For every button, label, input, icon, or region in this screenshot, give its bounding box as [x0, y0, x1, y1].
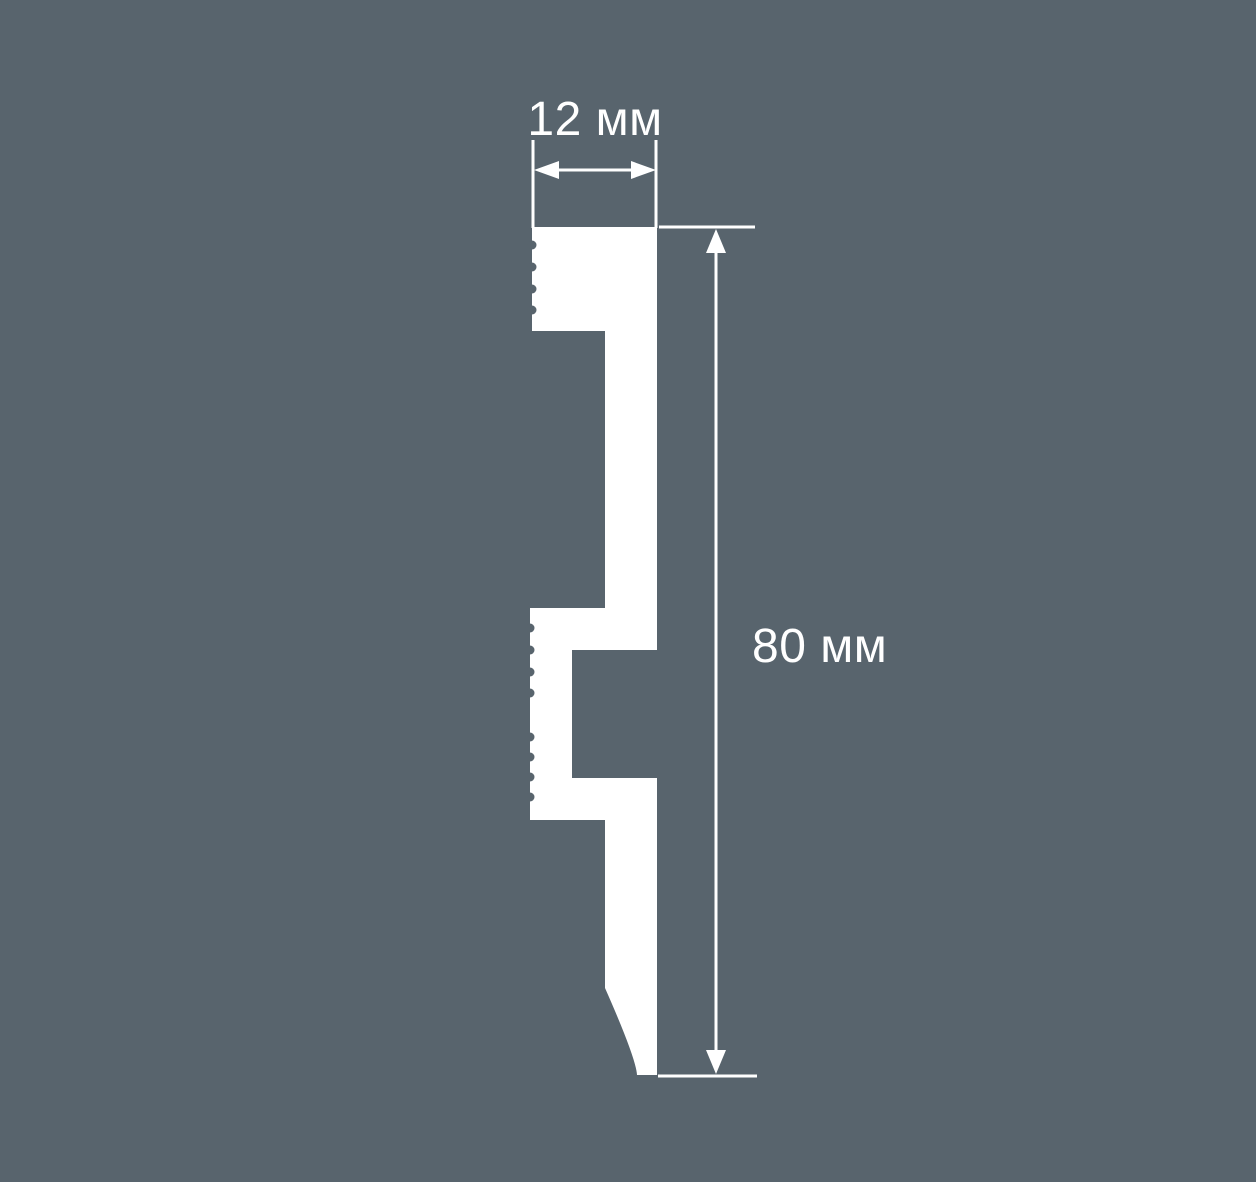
width-extension-line-right [655, 140, 658, 228]
width-arrow-shaft [554, 169, 636, 172]
height-extension-line-bottom [658, 1075, 757, 1078]
diagram-canvas: 12 мм 80 мм [0, 0, 1256, 1182]
width-dimension-label: 12 мм [495, 95, 695, 145]
height-arrowhead-bottom-icon [706, 1050, 726, 1074]
height-dimension-label: 80 мм [752, 622, 887, 672]
width-extension-line-left [532, 140, 535, 228]
height-arrowhead-top-icon [706, 229, 726, 253]
height-extension-line-top [659, 226, 755, 229]
height-arrow-shaft [715, 248, 718, 1054]
width-arrowhead-right-icon [631, 161, 656, 179]
height-dimension-arrow [658, 226, 757, 1078]
plinth-profile-diagram [0, 0, 1256, 1182]
plinth-profile-cross-section [530, 227, 657, 1075]
width-dimension-arrow [532, 140, 658, 228]
width-arrowhead-left-icon [534, 161, 559, 179]
